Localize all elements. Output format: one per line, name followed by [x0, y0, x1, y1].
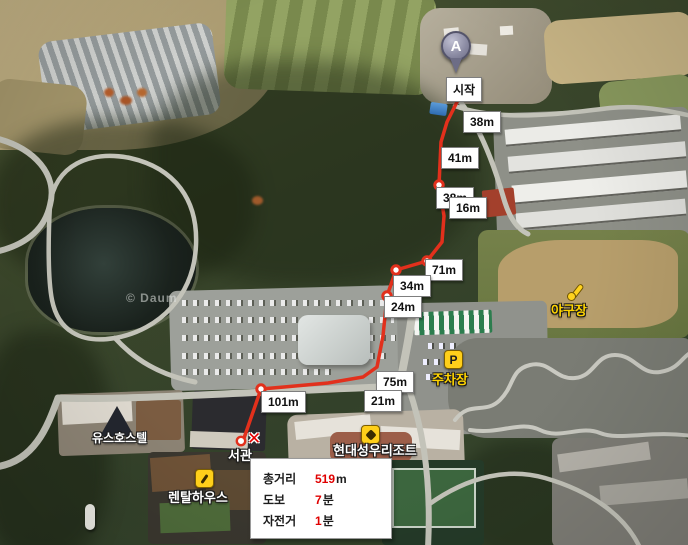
distance-label: 16m	[449, 197, 487, 219]
distance-label: 38m	[463, 111, 501, 133]
route-summary-panel: 총거리 519 m 도보 7 분 자전거 1 분	[250, 458, 392, 539]
summary-unit: 분	[323, 491, 334, 508]
origin-marker-letter: A	[451, 38, 462, 55]
summary-row-bicycle: 자전거 1 분	[263, 510, 391, 531]
summary-label: 총거리	[263, 470, 315, 487]
summary-unit: 분	[323, 512, 334, 529]
summary-row-walk: 도보 7 분	[263, 489, 391, 510]
summary-row-total-distance: 총거리 519 m	[263, 468, 391, 489]
distance-label: 101m	[261, 391, 306, 413]
distance-label: 41m	[441, 147, 479, 169]
summary-label: 자전거	[263, 512, 315, 529]
destination-x-icon[interactable]: ✕	[247, 431, 261, 448]
distance-label: 24m	[384, 296, 422, 318]
origin-marker-tail	[450, 58, 462, 73]
route-waypoint-dot	[392, 266, 400, 274]
satellite-map[interactable]: © Daum 야구장 P 주차장 유스호스텔 렌탈하우스 서관 현대성우리조트 …	[0, 0, 688, 545]
origin-marker-head: A	[441, 31, 471, 61]
start-label: 시작	[446, 77, 482, 102]
distance-label: 21m	[364, 390, 402, 412]
origin-marker-a[interactable]: A	[441, 31, 469, 77]
summary-value: 7	[315, 493, 322, 507]
summary-unit: m	[336, 472, 347, 486]
summary-value: 519	[315, 472, 335, 486]
distance-label: 34m	[393, 275, 431, 297]
route-waypoint-dot	[237, 437, 245, 445]
summary-label: 도보	[263, 491, 315, 508]
summary-value: 1	[315, 514, 322, 528]
